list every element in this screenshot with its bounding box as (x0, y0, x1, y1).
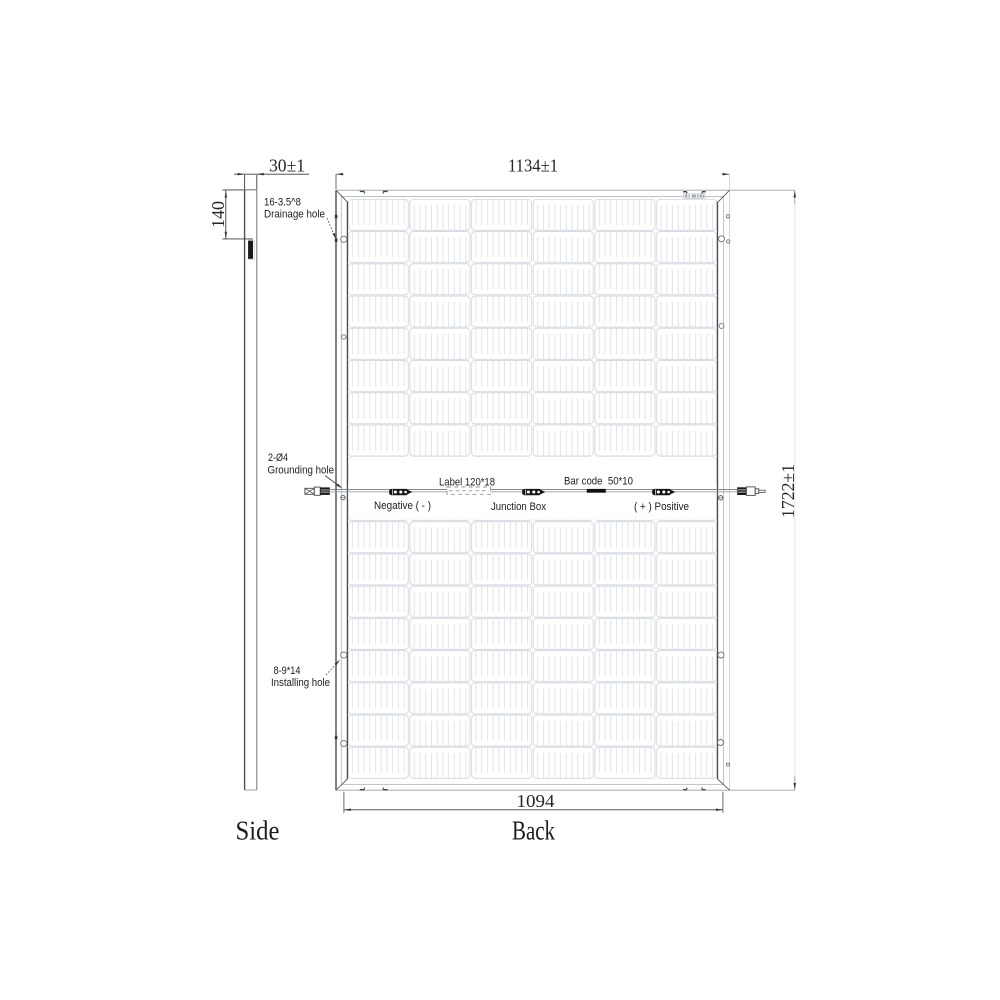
svg-text:8-9*14: 8-9*14 (274, 665, 301, 677)
svg-text:1134±1: 1134±1 (508, 156, 558, 176)
svg-text:Junction Box: Junction Box (491, 501, 546, 513)
svg-text:Back: Back (512, 816, 555, 846)
svg-text:140: 140 (208, 201, 228, 228)
svg-text:Drainage hole: Drainage hole (264, 208, 325, 220)
svg-text:Installing hole: Installing hole (271, 677, 330, 689)
svg-text:( + ) Positive: ( + ) Positive (634, 501, 689, 513)
svg-text:Label 120*18: Label 120*18 (439, 476, 495, 488)
svg-text:30±1: 30±1 (269, 155, 305, 175)
svg-text:Bar code 50*10: Bar code 50*10 (564, 476, 633, 488)
svg-text:Negative ( - ): Negative ( - ) (374, 500, 431, 512)
svg-text:1094: 1094 (517, 791, 555, 811)
svg-text:Side: Side (236, 816, 280, 846)
svg-text:Grounding hole: Grounding hole (268, 465, 335, 477)
svg-text:1722±1: 1722±1 (778, 464, 798, 518)
svg-text:2-Ø4: 2-Ø4 (268, 452, 288, 464)
svg-text:16-3.5^8: 16-3.5^8 (264, 197, 301, 209)
